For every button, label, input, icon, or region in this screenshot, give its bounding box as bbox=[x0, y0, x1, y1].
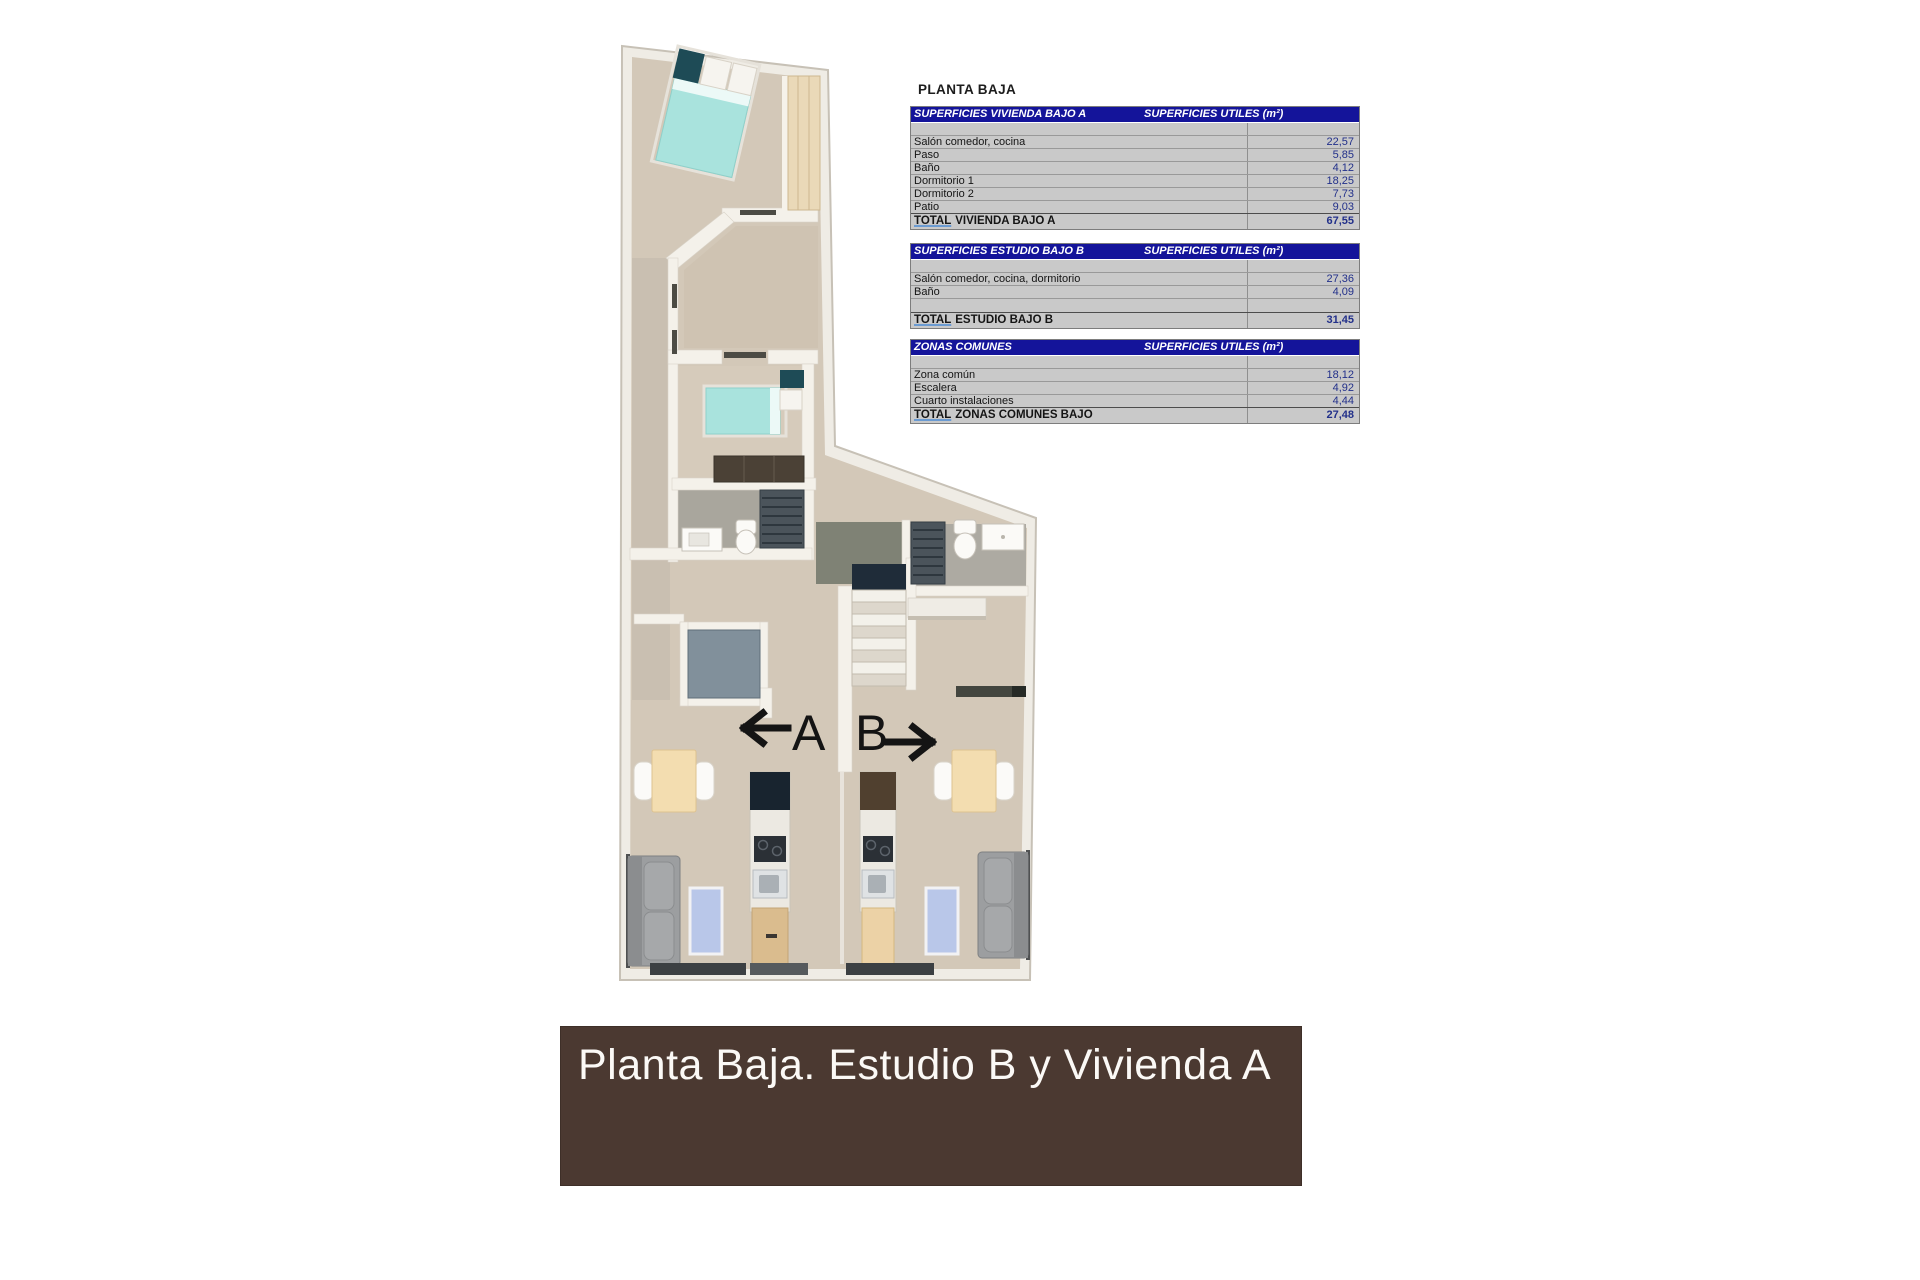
table-title: SUPERFICIES ESTUDIO BAJO B bbox=[914, 245, 1084, 257]
table-zonas-comunes: ZONAS COMUNES SUPERFICIES UTILES (m²) Zo… bbox=[910, 339, 1360, 424]
sink-b bbox=[982, 524, 1024, 550]
table-header: SUPERFICIES VIVIENDA BAJO A SUPERFICIES … bbox=[911, 107, 1359, 123]
table-units-header: SUPERFICIES UTILES (m²) bbox=[1144, 245, 1283, 257]
bench bbox=[956, 686, 1026, 697]
surface-tables: PLANTA BAJA SUPERFICIES VIVIENDA BAJO A … bbox=[910, 82, 1361, 427]
table-units-header: SUPERFICIES UTILES (m²) bbox=[1144, 341, 1283, 353]
wardrobe-1 bbox=[782, 76, 820, 210]
table-total-row: TOTALESTUDIO BAJO B 31,45 bbox=[911, 312, 1359, 328]
patio bbox=[688, 630, 760, 698]
spacer-row bbox=[911, 298, 1359, 312]
table-vivienda-bajo-a: SUPERFICIES VIVIENDA BAJO A SUPERFICIES … bbox=[910, 106, 1360, 230]
table-total-row: TOTALVIVIENDA BAJO A 67,55 bbox=[911, 213, 1359, 229]
table-header: ZONAS COMUNES SUPERFICIES UTILES (m²) bbox=[911, 340, 1359, 356]
sink-a bbox=[682, 528, 722, 551]
caption-text: Planta Baja. Estudio B y Vivienda A bbox=[578, 1041, 1271, 1090]
table-row: Zona común18,12 bbox=[911, 368, 1359, 381]
table-row: Escalera4,92 bbox=[911, 381, 1359, 394]
table-row: Paso5,85 bbox=[911, 148, 1359, 161]
table-row: Cuarto instalaciones4,44 bbox=[911, 394, 1359, 407]
rug-a bbox=[690, 888, 722, 954]
toilet-a bbox=[736, 520, 756, 554]
unit-divider-wall bbox=[840, 772, 844, 964]
table-total-row: TOTALZONAS COMUNES BAJO 27,48 bbox=[911, 407, 1359, 423]
thresholds bbox=[650, 963, 934, 975]
kitchen-island-b bbox=[860, 772, 896, 968]
kitchen-island-a bbox=[750, 772, 790, 968]
table-header: SUPERFICIES ESTUDIO BAJO B SUPERFICIES U… bbox=[911, 244, 1359, 260]
toilet-b bbox=[954, 520, 976, 559]
stairs bbox=[852, 564, 906, 686]
table-title: SUPERFICIES VIVIENDA BAJO A bbox=[914, 108, 1086, 120]
unit-a-label: A bbox=[792, 705, 826, 761]
table-units-header: SUPERFICIES UTILES (m²) bbox=[1144, 108, 1283, 120]
table-row: Dormitorio 118,25 bbox=[911, 174, 1359, 187]
caption-banner: Planta Baja. Estudio B y Vivienda A bbox=[560, 1026, 1302, 1186]
page-title: PLANTA BAJA bbox=[918, 82, 1016, 97]
corridor-paso bbox=[632, 258, 670, 700]
shower-a bbox=[760, 490, 804, 548]
counter-b bbox=[908, 598, 986, 620]
sofa-b bbox=[978, 850, 1030, 960]
table-row: Baño4,09 bbox=[911, 285, 1359, 298]
sofa-a bbox=[626, 854, 680, 968]
spacer-row bbox=[911, 260, 1359, 272]
table-estudio-bajo-b: SUPERFICIES ESTUDIO BAJO B SUPERFICIES U… bbox=[910, 243, 1360, 329]
spacer-row bbox=[911, 356, 1359, 368]
table-row: Patio9,03 bbox=[911, 200, 1359, 213]
table-title: ZONAS COMUNES bbox=[914, 341, 1012, 353]
table-row: Baño4,12 bbox=[911, 161, 1359, 174]
rug-b bbox=[926, 888, 958, 954]
shower-b bbox=[911, 522, 945, 584]
table-row: Dormitorio 27,73 bbox=[911, 187, 1359, 200]
spacer-row bbox=[911, 123, 1359, 135]
table-row: Salón comedor, cocina, dormitorio27,36 bbox=[911, 272, 1359, 285]
wardrobe-2 bbox=[714, 456, 804, 482]
table-row: Salón comedor, cocina22,57 bbox=[911, 135, 1359, 148]
unit-b-label: B bbox=[855, 705, 888, 761]
